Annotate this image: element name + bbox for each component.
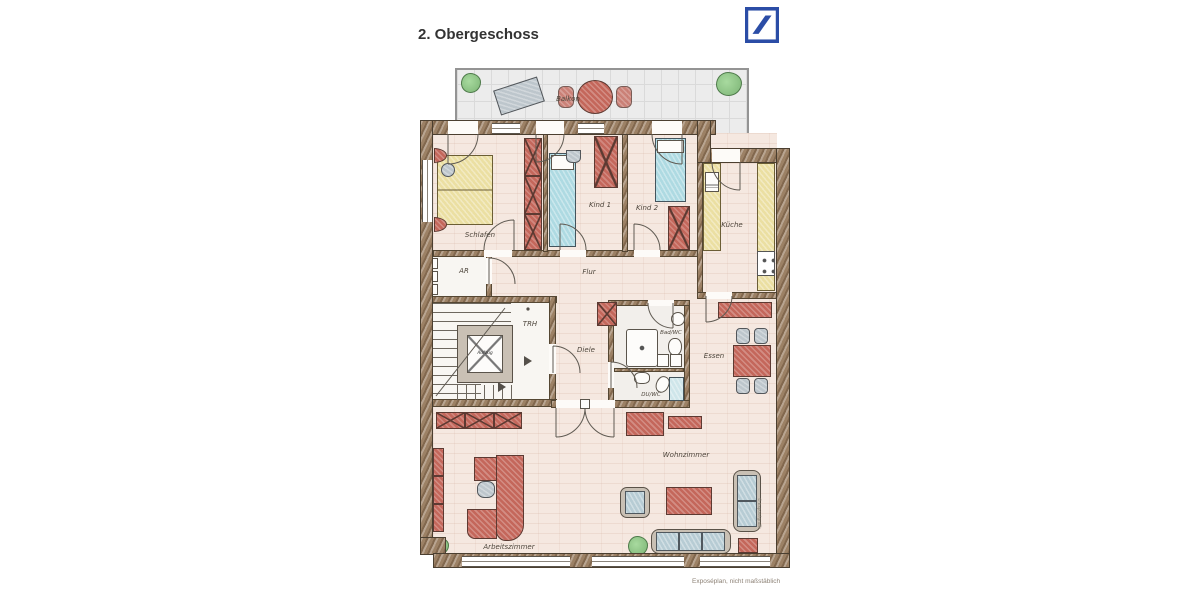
window (492, 123, 520, 134)
desk (474, 457, 497, 481)
cooktop (757, 251, 775, 276)
storage-floor (433, 255, 486, 298)
wall-shelf (566, 150, 581, 163)
wall-segment (543, 133, 548, 252)
balcony-table (577, 80, 613, 114)
shower-tray (626, 329, 658, 367)
wardrobe (524, 138, 542, 176)
double-door-post (580, 399, 590, 409)
sofa-seat (737, 475, 757, 501)
copyright-note: © Exposégrafik (757, 498, 762, 529)
room-label-arbeitszimmer: Arbeitszimmer (483, 543, 534, 551)
door-opening (608, 362, 614, 388)
pillow (657, 140, 684, 153)
plan-caption: Exposéplan, nicht maßstäblich (692, 578, 780, 585)
wardrobe (594, 136, 618, 188)
room-label-wohnzimmer: Wohnzimmer (663, 451, 710, 459)
desk (496, 455, 524, 541)
window (578, 123, 604, 134)
lowboard (668, 416, 702, 429)
room-label-trh: TRH (523, 320, 537, 328)
room-label-duwc: DU/WC (641, 392, 660, 398)
stairs (481, 303, 511, 326)
door-opening (634, 250, 660, 257)
wardrobe (494, 412, 522, 429)
wall-segment (420, 399, 557, 407)
room-label-kind2: Kind 2 (636, 204, 658, 212)
dining-chair (736, 328, 750, 344)
sideboard (718, 302, 772, 318)
door-opening (712, 149, 740, 162)
office-chair (477, 481, 495, 498)
door-opening (652, 121, 682, 134)
door-opening (706, 292, 732, 299)
room-label-kind1: Kind 1 (589, 201, 611, 209)
door-opening (560, 250, 586, 257)
window (700, 556, 770, 567)
washing-machine (670, 354, 682, 367)
armchair-seat (625, 491, 645, 514)
wardrobe (597, 302, 617, 326)
pillow (441, 163, 455, 177)
room-label-essen: Essen (704, 352, 724, 360)
washing-machine (657, 354, 669, 367)
room-label-flur: Flur (582, 268, 595, 276)
room-label-balkon: Balkon (556, 95, 580, 103)
wall-segment (776, 148, 790, 568)
sofa-seat (702, 532, 725, 551)
room-label-ar: AR (459, 267, 469, 275)
desk (467, 509, 497, 539)
wall-segment (420, 296, 557, 303)
door-opening (484, 250, 512, 257)
wardrobe (524, 176, 542, 214)
washbasin (671, 312, 685, 326)
room-label-badwc: Bad/WC (660, 330, 682, 336)
door-opening (549, 344, 556, 374)
sofa-seat (737, 501, 757, 527)
bookshelf (433, 476, 444, 504)
elevator-label: Aufzug (477, 351, 493, 356)
sofa-seat (656, 532, 679, 551)
stairs (457, 385, 513, 400)
room-label-schlafen: Schlafen (465, 231, 495, 239)
sideboard (626, 412, 664, 436)
dining-table (733, 345, 771, 377)
window (592, 556, 684, 567)
wardrobe (465, 412, 494, 429)
wall-segment (697, 120, 711, 163)
page-title: 2. Obergeschoss (418, 26, 539, 43)
wardrobe (668, 206, 690, 250)
shower-tray (669, 377, 684, 401)
window (422, 160, 433, 222)
floorplan-page: 2. Obergeschoss Balkon Aufzug TRH (0, 0, 1200, 600)
wall-segment (684, 300, 690, 406)
wardrobe (524, 214, 542, 250)
dining-chair (736, 378, 750, 394)
door-opening (486, 258, 492, 284)
dining-chair (754, 328, 768, 344)
room-label-diele: Diele (577, 346, 595, 354)
coffee-table (666, 487, 712, 515)
wardrobe (436, 412, 465, 429)
sofa-seat (679, 532, 702, 551)
room-label-kueche: Küche (721, 221, 742, 229)
bookshelf (433, 504, 444, 532)
wall-segment (614, 368, 684, 372)
window (462, 556, 570, 567)
wall-segment (622, 133, 628, 252)
deutsche-bank-logo-icon (745, 7, 779, 43)
side-table (738, 538, 758, 553)
washbasin (634, 372, 650, 384)
bookshelf (433, 448, 444, 476)
oven (705, 172, 719, 192)
dining-chair (754, 378, 768, 394)
balcony-seat (616, 86, 632, 108)
door-opening (536, 121, 564, 134)
door-opening (448, 121, 478, 134)
door-opening (648, 300, 674, 306)
